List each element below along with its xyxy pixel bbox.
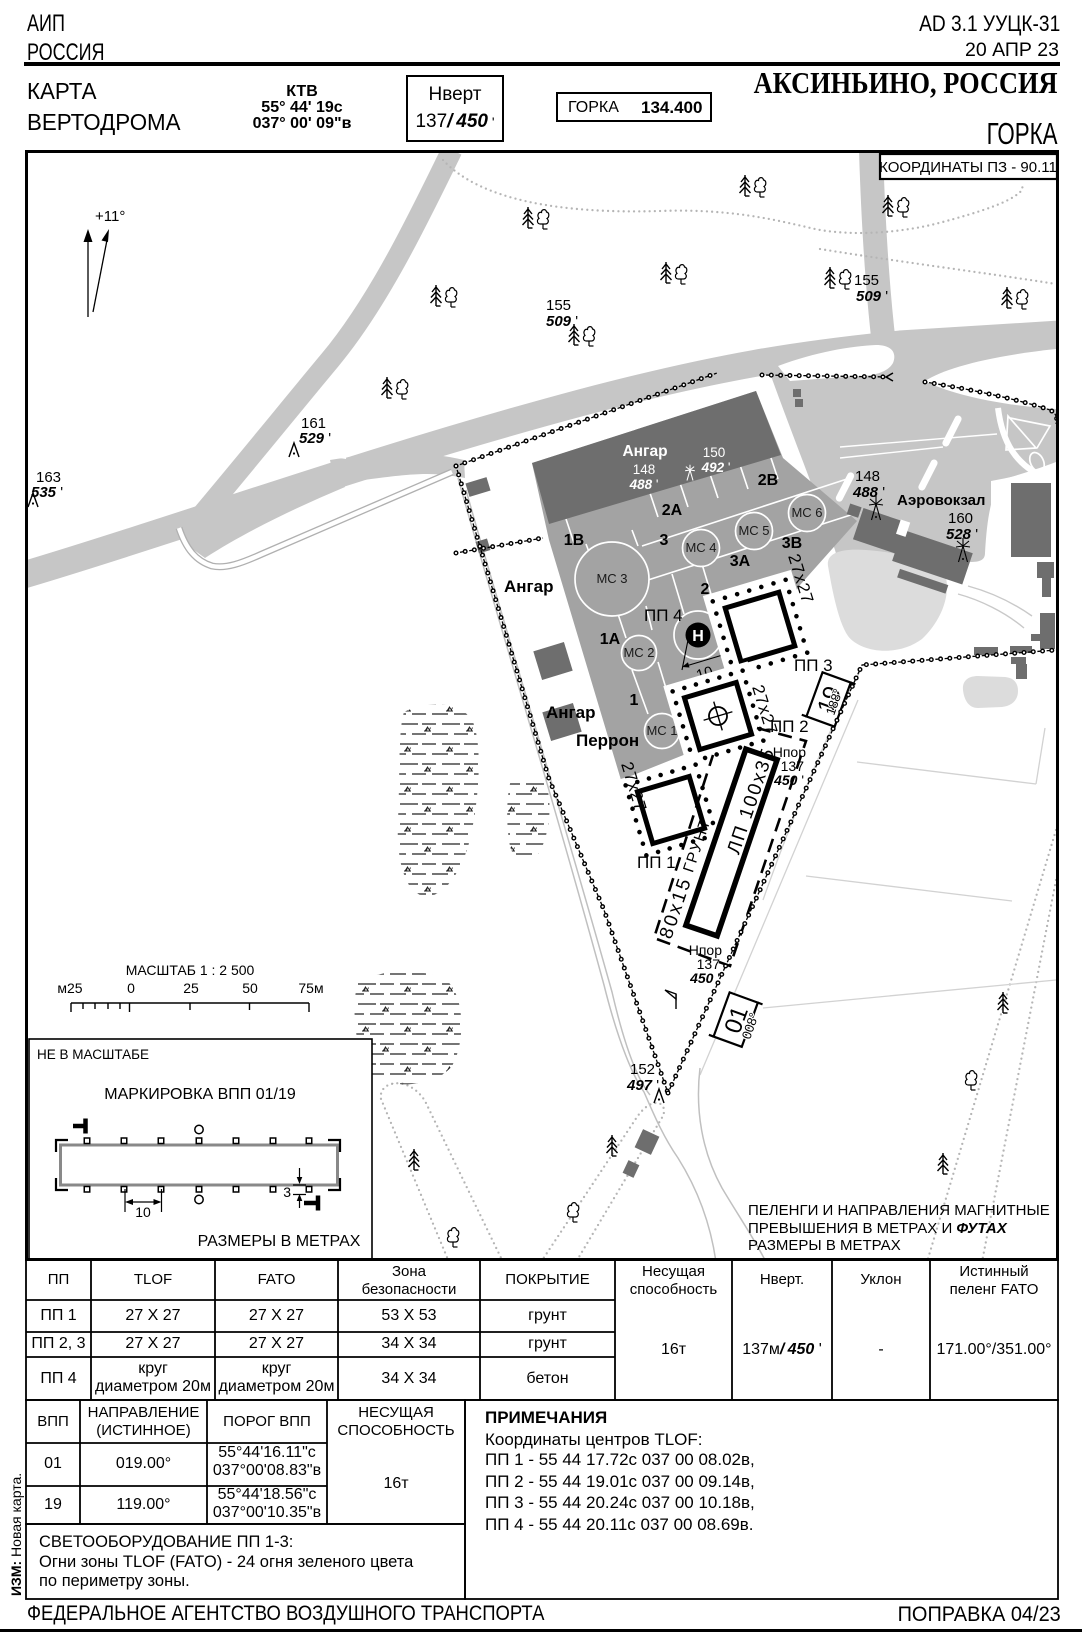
svg-text:150: 150 <box>703 445 726 460</box>
svg-text:450 ': 450 ' <box>773 772 804 788</box>
svg-text:155: 155 <box>546 297 571 314</box>
svg-text:509 ': 509 ' <box>856 288 888 305</box>
svg-text:488 ': 488 ' <box>852 484 885 501</box>
svg-text:РАЗМЕРЫ В МЕТРАХ: РАЗМЕРЫ В МЕТРАХ <box>198 1233 361 1250</box>
svg-text:497 ': 497 ' <box>626 1077 659 1094</box>
svg-text:25: 25 <box>183 980 199 996</box>
svg-text:1А: 1А <box>600 631 621 648</box>
svg-text:50: 50 <box>242 980 258 996</box>
svg-text:Ангар: Ангар <box>622 443 667 460</box>
svg-text:МС 2: МС 2 <box>623 645 654 660</box>
svg-text:МАРКИРОВКА ВПП 01/19: МАРКИРОВКА ВПП 01/19 <box>104 1086 296 1103</box>
svg-text:3: 3 <box>283 1184 291 1200</box>
svg-text:450 ': 450 ' <box>689 970 720 986</box>
svg-text:МС 5: МС 5 <box>738 523 769 538</box>
svg-text:160: 160 <box>948 510 973 527</box>
svg-text:148: 148 <box>855 468 880 485</box>
svg-text:492 ': 492 ' <box>701 460 731 475</box>
svg-text:МАСШТАБ 1 : 2 500: МАСШТАБ 1 : 2 500 <box>126 962 255 978</box>
svg-text:Ангар: Ангар <box>546 703 595 722</box>
svg-text:148: 148 <box>633 462 656 477</box>
svg-text:509 ': 509 ' <box>546 313 578 330</box>
svg-text:529 ': 529 ' <box>299 430 331 447</box>
svg-text:РАЗМЕРЫ В МЕТРАХ: РАЗМЕРЫ В МЕТРАХ <box>748 1237 901 1254</box>
svg-text:НЕ В МАСШТАБЕ: НЕ В МАСШТАБЕ <box>37 1047 149 1062</box>
svg-text:1: 1 <box>630 692 639 709</box>
svg-text:ПРЕВЫШЕНИЯ В МЕТРАХ И ФУТАХ: ПРЕВЫШЕНИЯ В МЕТРАХ И ФУТАХ <box>748 1220 1008 1237</box>
svg-text:МС 3: МС 3 <box>596 571 627 586</box>
svg-text:Аэровокзал: Аэровокзал <box>897 492 985 509</box>
svg-text:75м: 75м <box>298 980 323 996</box>
svg-text:535 ': 535 ' <box>31 484 63 501</box>
svg-text:ПП 3: ПП 3 <box>794 656 833 675</box>
svg-text:ПЕЛЕНГИ И НАПРАВЛЕНИЯ МАГНИТНЫ: ПЕЛЕНГИ И НАПРАВЛЕНИЯ МАГНИТНЫЕ <box>748 1202 1050 1219</box>
svg-text:2А: 2А <box>662 502 683 519</box>
svg-text:3А: 3А <box>730 553 751 570</box>
svg-text:КООРДИНАТЫ ПЗ - 90.11: КООРДИНАТЫ ПЗ - 90.11 <box>879 159 1057 176</box>
svg-text:ПП 1: ПП 1 <box>637 853 676 872</box>
svg-text:Н: Н <box>692 628 704 645</box>
svg-text:1В: 1В <box>564 532 584 549</box>
svg-text:МС 1: МС 1 <box>646 723 677 738</box>
svg-text:м25: м25 <box>57 980 82 996</box>
svg-text:528 ': 528 ' <box>946 526 978 543</box>
svg-text:0: 0 <box>127 980 135 996</box>
svg-text:488 ': 488 ' <box>629 477 659 492</box>
svg-text:+11°: +11° <box>95 208 125 225</box>
svg-text:2: 2 <box>701 581 710 598</box>
svg-text:3В: 3В <box>782 535 802 552</box>
svg-text:Ангар: Ангар <box>504 577 553 596</box>
svg-text:152: 152 <box>630 1061 655 1078</box>
svg-text:10: 10 <box>135 1204 151 1220</box>
svg-text:Перрон: Перрон <box>576 731 639 750</box>
svg-text:МС 4: МС 4 <box>685 540 716 555</box>
svg-text:2В: 2В <box>758 472 778 489</box>
svg-text:ПП 4: ПП 4 <box>644 606 683 625</box>
svg-text:МС 6: МС 6 <box>791 505 822 520</box>
svg-text:155: 155 <box>854 272 879 289</box>
svg-text:3: 3 <box>660 532 669 549</box>
